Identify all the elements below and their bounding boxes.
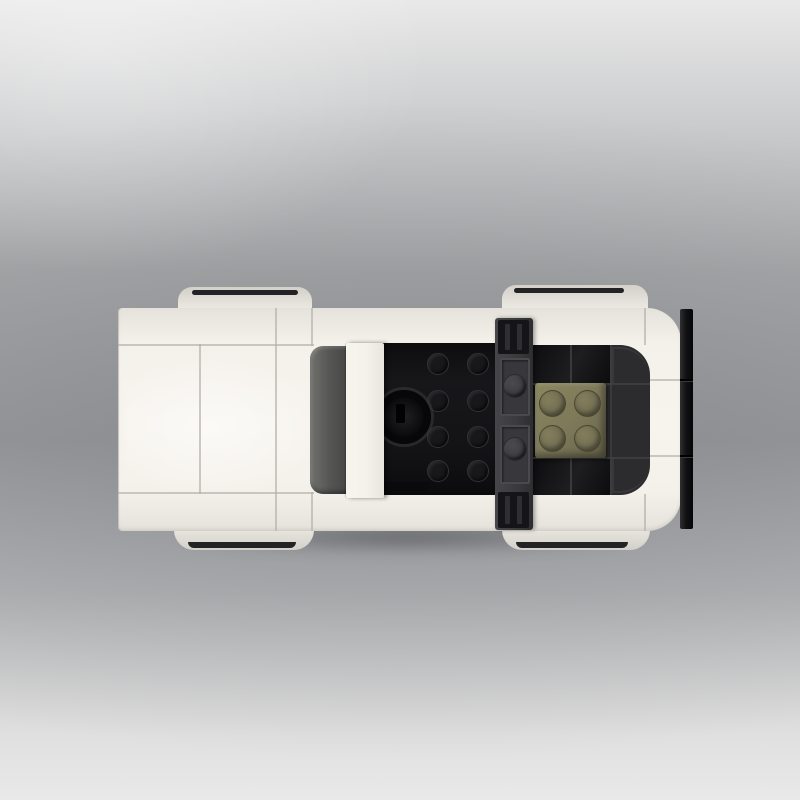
seat-stud [574,425,601,452]
cockpit-stud [427,426,449,448]
cowl-seam-top [311,308,313,346]
wing-segment-gap [680,379,693,381]
rear-right-tire [516,542,628,548]
cockpit-stud [427,353,449,375]
roll-bar-stud [503,374,527,398]
clip-slot [505,496,510,524]
studio-backdrop [0,0,800,800]
rear-band-seam-top [644,308,646,345]
rear-band-seam-bottom [644,494,646,531]
seat-stud [574,390,601,417]
roll-bar-stud [503,437,527,461]
engine-tile-seam [570,458,572,495]
rear-left-tire [514,288,624,293]
hood-highlight [125,350,315,490]
roll-bar-plate [500,425,530,484]
roof-bar [346,343,384,498]
seat-stud [539,425,566,452]
cowl-seam-bottom [311,492,313,531]
roll-bar-clip-top [498,320,529,354]
roll-bar-plate [500,358,530,416]
cockpit-stud [427,390,449,412]
seat-stud [539,390,566,417]
hood-seam-mid [199,344,201,494]
wing-segment-gap [680,455,693,457]
tail-seam-upper [649,379,681,381]
engine-tile-seam [570,345,572,383]
tail-seam-lower [649,455,681,457]
cockpit-stud [467,353,489,375]
front-fender-seam [275,308,277,531]
seat-brick [535,383,606,458]
front-right-tire [188,542,296,548]
steering-wheel [377,390,431,444]
hood-seam-top [118,344,314,346]
clip-slot [517,324,522,350]
cockpit-stud [467,390,489,412]
front-left-tire [192,290,298,295]
hood-seam-bottom [118,492,314,494]
roll-bar [495,318,533,530]
cockpit-edge-piece [382,482,430,491]
rear-wing [680,309,693,529]
cockpit-stud [467,426,489,448]
clip-slot [505,324,510,350]
cockpit-stud [427,460,449,482]
clip-slot [517,496,522,524]
steering-wheel-hub [396,404,405,423]
cockpit-stud [467,460,489,482]
roll-bar-clip-bottom [498,492,529,528]
